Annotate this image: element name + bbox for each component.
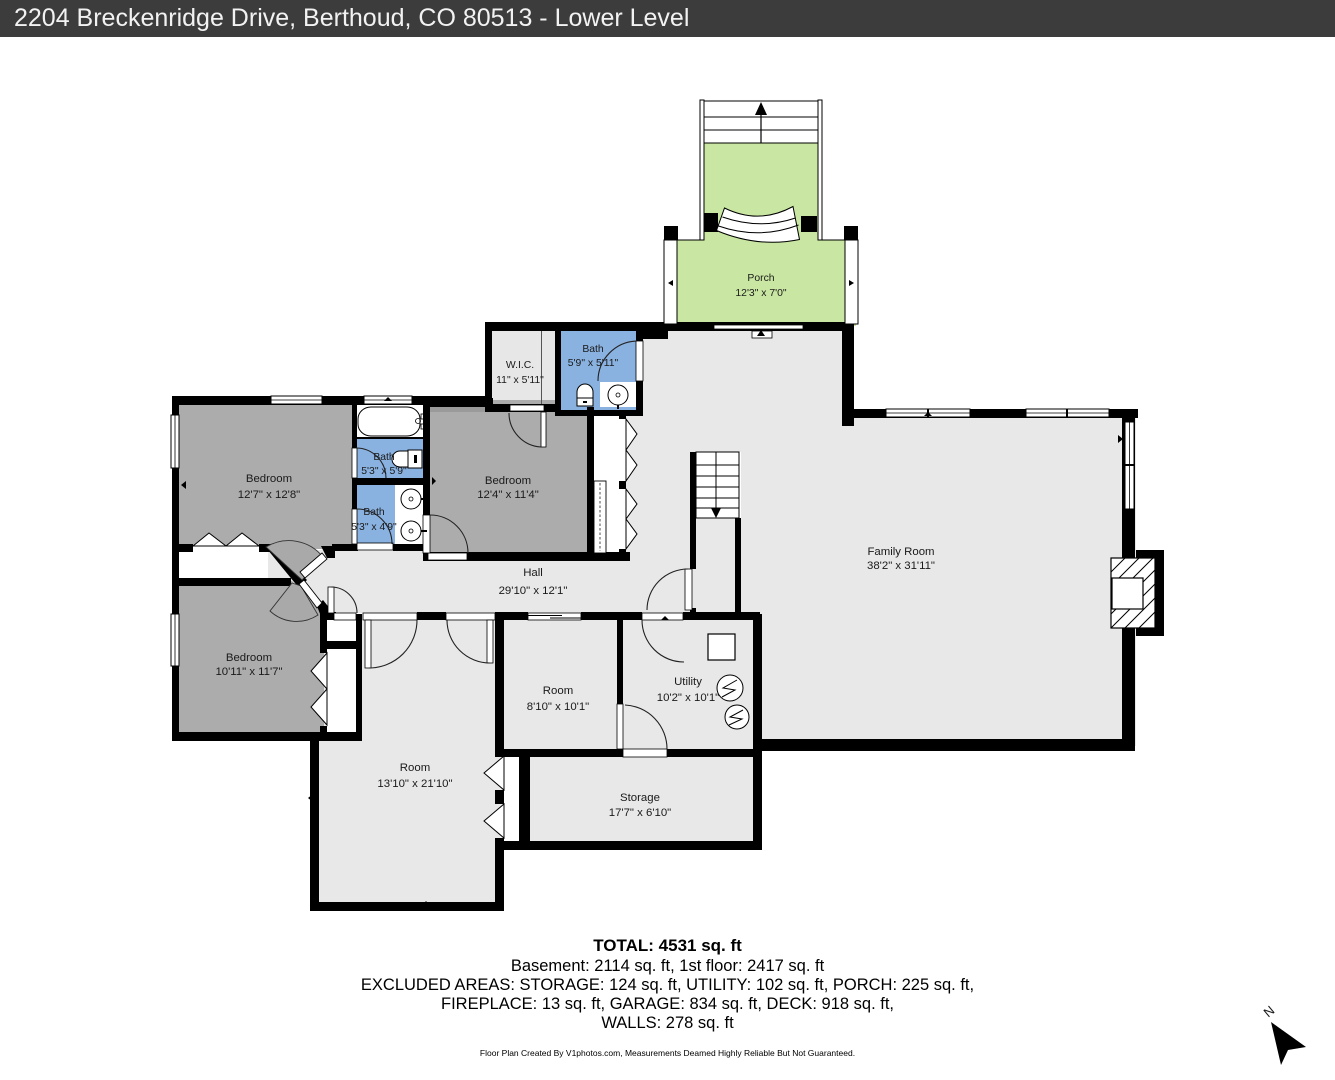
svg-text:Room: Room bbox=[543, 685, 573, 697]
svg-text:12'4" x 11'4": 12'4" x 11'4" bbox=[477, 489, 539, 501]
svg-text:Utility: Utility bbox=[674, 676, 702, 688]
svg-text:12'7" x 12'8": 12'7" x 12'8" bbox=[238, 489, 300, 501]
svg-text:10'11" x 11'7": 10'11" x 11'7" bbox=[215, 666, 282, 678]
svg-text:Storage: Storage bbox=[620, 792, 660, 804]
svg-text:W.I.C.: W.I.C. bbox=[506, 360, 534, 371]
svg-text:Family Room: Family Room bbox=[867, 546, 934, 558]
svg-text:Porch: Porch bbox=[747, 273, 774, 284]
svg-text:17'7" x 6'10": 17'7" x 6'10" bbox=[609, 807, 671, 819]
svg-text:5'3" x 5'9": 5'3" x 5'9" bbox=[361, 466, 407, 477]
svg-text:38'2" x 31'11": 38'2" x 31'11" bbox=[867, 560, 935, 572]
svg-text:Bedroom: Bedroom bbox=[226, 652, 272, 664]
svg-text:Bath: Bath bbox=[363, 507, 385, 518]
svg-text:Bath: Bath bbox=[373, 452, 395, 463]
svg-text:Bedroom: Bedroom bbox=[246, 473, 292, 485]
svg-text:Bath: Bath bbox=[582, 344, 604, 355]
svg-text:Room: Room bbox=[400, 762, 430, 774]
svg-text:Hall: Hall bbox=[523, 567, 543, 579]
svg-text:11" x 5'11": 11" x 5'11" bbox=[496, 375, 544, 386]
svg-text:13'10" x 21'10": 13'10" x 21'10" bbox=[377, 778, 452, 790]
svg-text:Bedroom: Bedroom bbox=[485, 475, 531, 487]
svg-text:12'3" x 7'0": 12'3" x 7'0" bbox=[735, 288, 787, 299]
svg-text:5'9" x 5'11": 5'9" x 5'11" bbox=[568, 358, 619, 369]
svg-text:10'2" x 10'1": 10'2" x 10'1" bbox=[657, 692, 719, 704]
svg-text:29'10" x 12'1": 29'10" x 12'1" bbox=[499, 585, 568, 597]
svg-text:5'3" x 4'9": 5'3" x 4'9" bbox=[351, 522, 397, 533]
svg-text:8'10" x 10'1": 8'10" x 10'1" bbox=[527, 701, 589, 713]
